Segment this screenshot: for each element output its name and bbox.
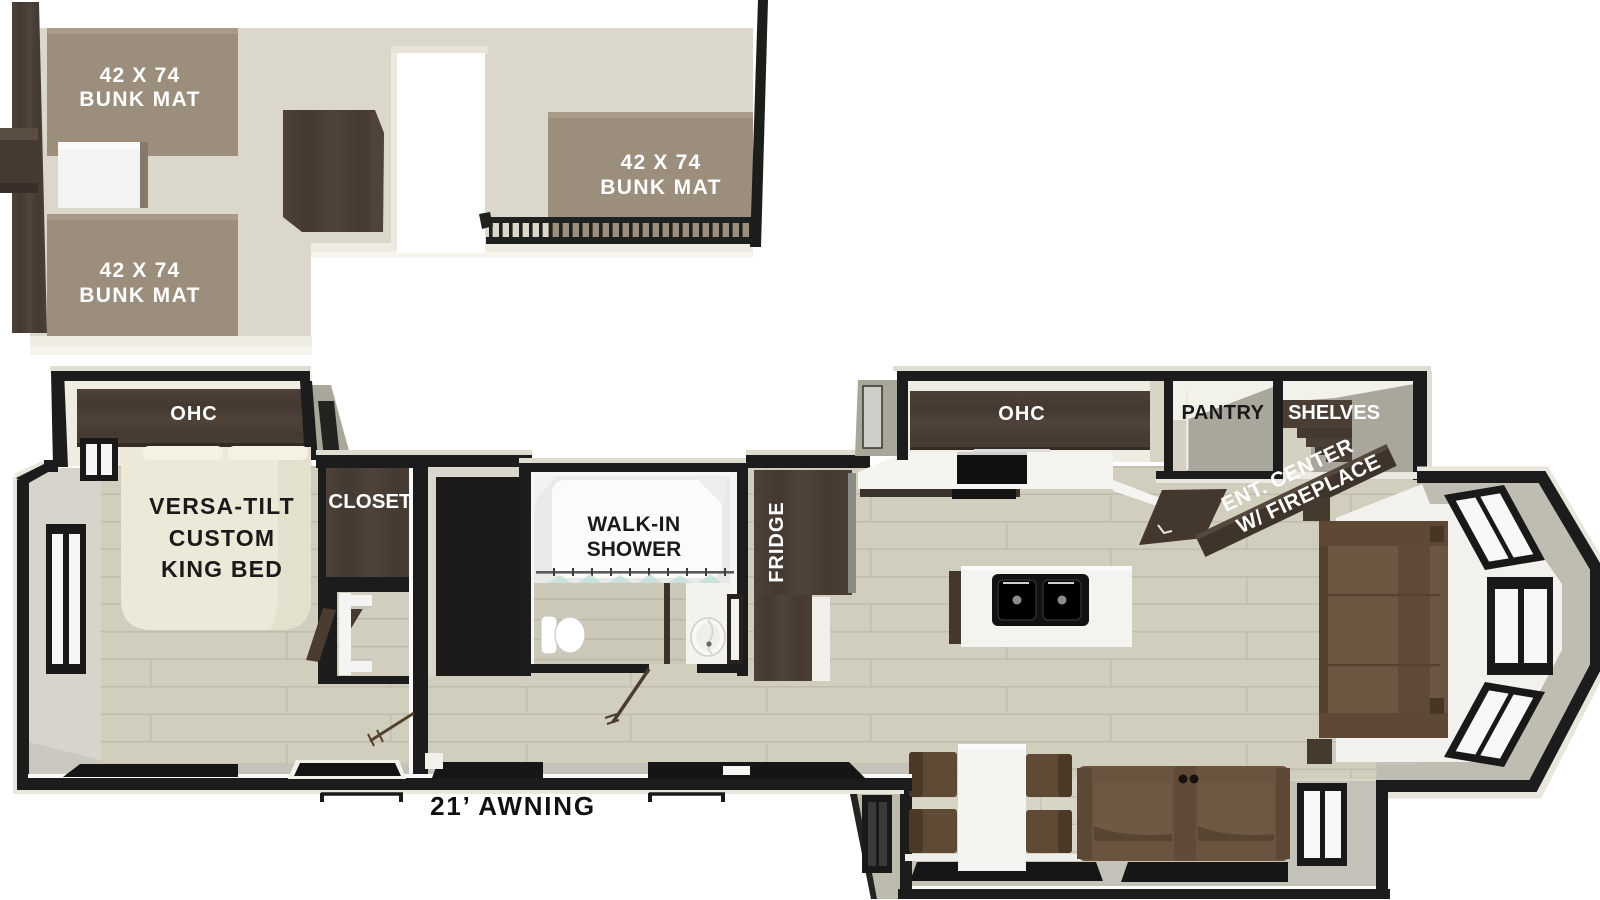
svg-text:WALK-IN: WALK-IN: [587, 513, 680, 536]
svg-text:CLOSET: CLOSET: [328, 490, 412, 513]
svg-text:42 X 74: 42 X 74: [100, 259, 181, 282]
svg-text:OHC: OHC: [170, 403, 217, 425]
svg-text:SHELVES: SHELVES: [1288, 402, 1380, 424]
svg-text:21’ AWNING: 21’ AWNING: [430, 791, 596, 821]
svg-text:BUNK MAT: BUNK MAT: [79, 88, 201, 111]
svg-text:KING BED: KING BED: [161, 556, 283, 582]
svg-text:SHOWER: SHOWER: [587, 538, 682, 561]
svg-text:CUSTOM: CUSTOM: [169, 525, 275, 551]
svg-text:OHC: OHC: [998, 403, 1045, 425]
svg-text:42 X 74: 42 X 74: [621, 151, 702, 174]
svg-text:BUNK MAT: BUNK MAT: [79, 284, 201, 307]
svg-text:42 X 74: 42 X 74: [100, 64, 181, 87]
svg-text:PANTRY: PANTRY: [1182, 402, 1265, 424]
svg-text:BUNK MAT: BUNK MAT: [600, 176, 722, 199]
svg-text:FRIDGE: FRIDGE: [766, 501, 788, 583]
svg-text:VERSA-TILT: VERSA-TILT: [149, 493, 295, 519]
